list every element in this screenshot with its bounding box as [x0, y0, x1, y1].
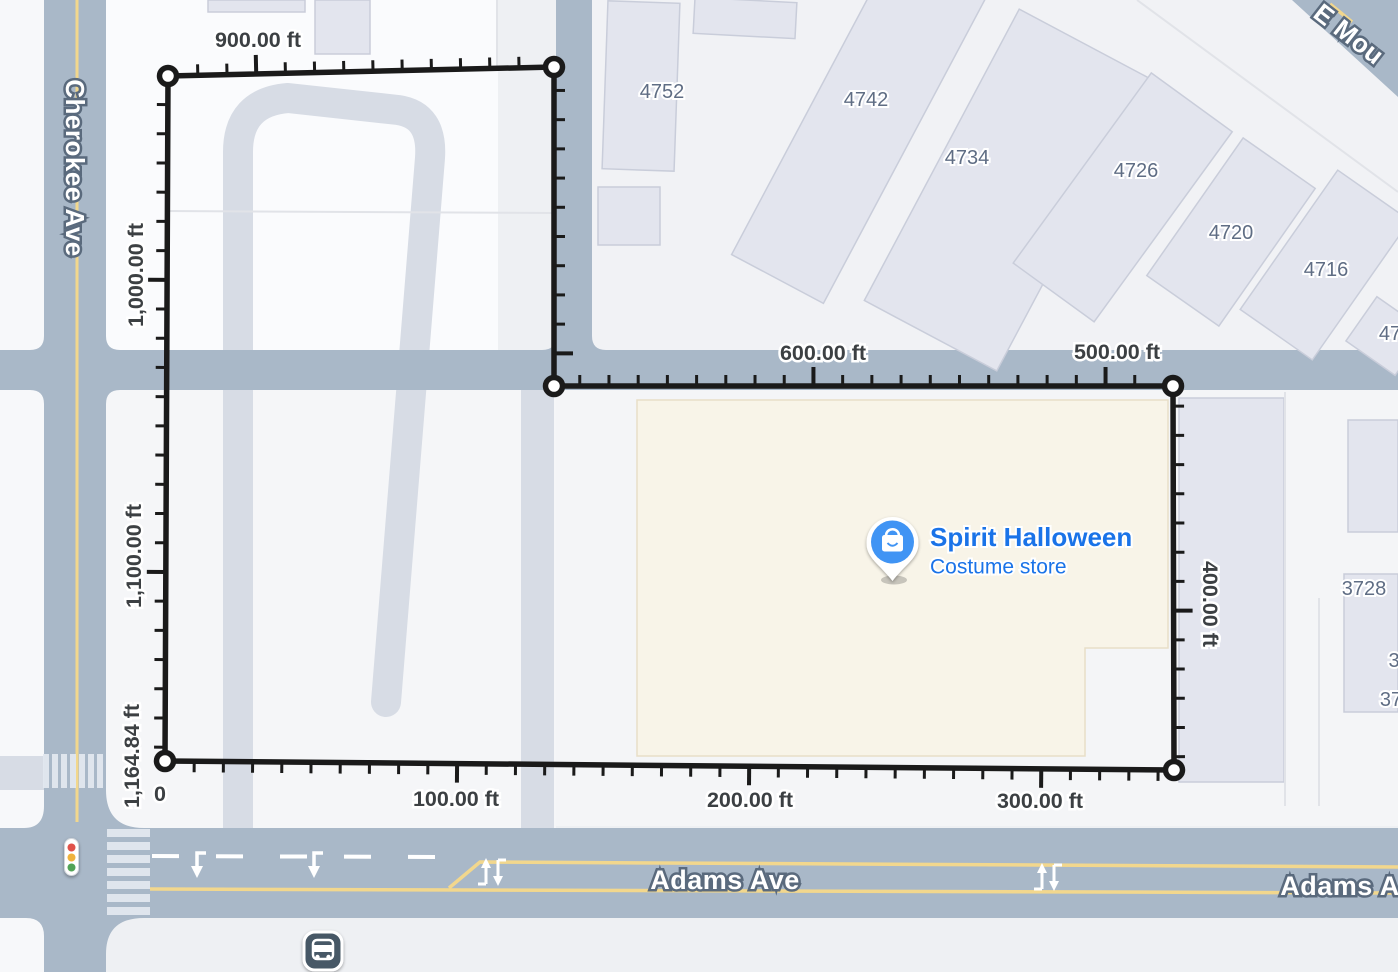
- building: [1179, 398, 1284, 782]
- building-label-4752: 4752: [640, 81, 685, 103]
- building-label-47: 47: [1379, 323, 1398, 345]
- north-road: [556, 0, 592, 390]
- measure-vertex-handle[interactable]: [546, 59, 563, 76]
- poi-category: Costume store: [930, 556, 1067, 579]
- measure-vertex-handle[interactable]: [1165, 378, 1182, 395]
- traffic-light-icon: [65, 839, 79, 876]
- building-label-4742: 4742: [844, 89, 889, 111]
- measure-vertex-handle[interactable]: [546, 378, 563, 395]
- street-label-adams-right: Adams A: [1280, 871, 1398, 901]
- amber-light: [68, 854, 76, 862]
- measure-label-1000: 1,000.00 ft: [124, 223, 148, 327]
- building-label-4726: 4726: [1114, 160, 1159, 182]
- crosswalk-cherokee: [43, 754, 103, 788]
- map-canvas[interactable]: 4752 4742 4734 4726 4720 4716 47 3728 3 …: [0, 0, 1398, 972]
- building-label-3728: 3728: [1342, 578, 1387, 600]
- street-label-adams: Adams Ave: [650, 865, 800, 895]
- measure-label-total: 1,164.84 ft: [120, 704, 144, 808]
- street-label-cherokee: Cherokee Ave: [60, 79, 90, 257]
- bus-stop-icon[interactable]: [304, 932, 342, 970]
- red-light: [68, 844, 76, 852]
- building: [693, 0, 797, 39]
- building: [1348, 420, 1398, 532]
- measure-vertex-handle[interactable]: [157, 753, 174, 770]
- measure-label-900: 900.00 ft: [215, 28, 301, 52]
- measure-vertex-handle[interactable]: [160, 68, 177, 85]
- measure-label-400: 400.00 ft: [1198, 561, 1222, 647]
- building: [208, 0, 305, 12]
- measure-label-200: 200.00 ft: [707, 788, 793, 812]
- building-label-4716: 4716: [1304, 259, 1349, 281]
- measure-label-300: 300.00 ft: [997, 789, 1083, 813]
- side-street-stub: [0, 756, 44, 790]
- poi-name[interactable]: Spirit Halloween: [930, 522, 1132, 552]
- building-label-3: 3: [1388, 650, 1398, 672]
- building-label-4720: 4720: [1209, 222, 1254, 244]
- measure-label-100: 100.00 ft: [413, 787, 499, 811]
- measure-label-500: 500.00 ft: [1074, 340, 1160, 364]
- building: [598, 187, 660, 245]
- measure-label-1100: 1,100.00 ft: [122, 504, 146, 608]
- google-maps-viewport[interactable]: 4752 4742 4734 4726 4720 4716 47 3728 3 …: [0, 0, 1398, 972]
- building-label-37: 37: [1380, 689, 1398, 711]
- building: [315, 0, 370, 54]
- green-light: [68, 864, 76, 872]
- building-label-4734: 4734: [945, 147, 990, 169]
- measure-label-600: 600.00 ft: [780, 341, 866, 365]
- measure-label-0: 0: [154, 782, 166, 806]
- measure-vertex-handle[interactable]: [1166, 762, 1183, 779]
